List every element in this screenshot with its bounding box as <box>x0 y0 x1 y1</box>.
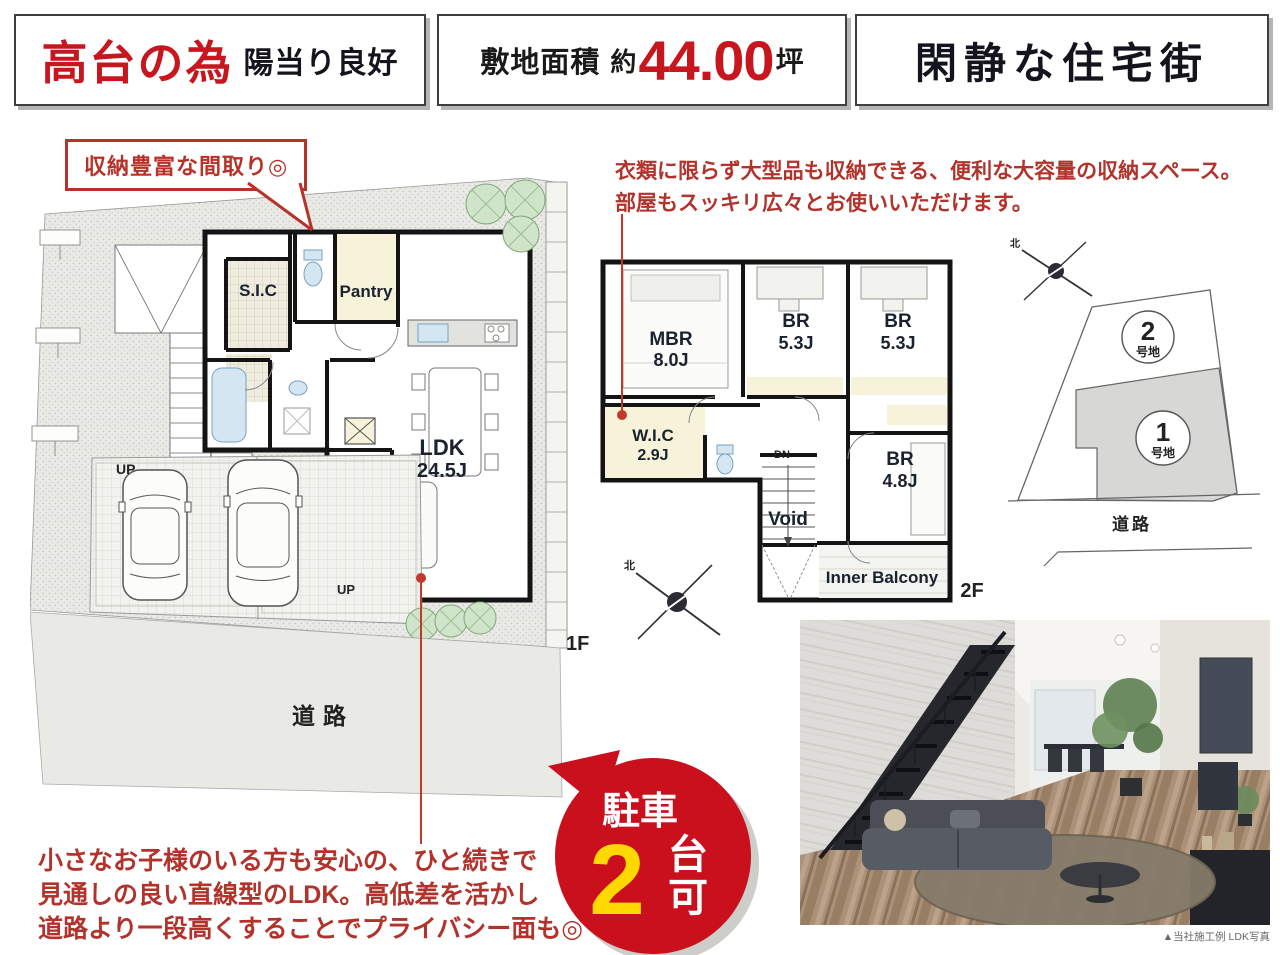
lot2-marker: 2 号地 <box>1122 311 1174 363</box>
closet-br2 <box>851 377 947 395</box>
toilet-1f <box>304 250 322 286</box>
pantry-label: Pantry <box>340 282 393 301</box>
flyer-page: 高台の為 陽当り良好 敷地面積 約 44.00 坪 閑静な住宅街 収納豊富な間取… <box>0 0 1280 955</box>
floor-plan-1f: S.I.C Pantry LDK 24.5J UP UP 道路 1F <box>30 172 610 800</box>
badge-suffix-top: 台 <box>668 833 708 877</box>
compass-site: 北 <box>1010 234 1102 306</box>
floor1-label: 1F <box>566 633 589 655</box>
photo-art-large <box>1200 658 1252 753</box>
car-2 <box>224 460 302 606</box>
callout-tail <box>230 182 320 234</box>
br3-label: BR <box>886 449 914 470</box>
dn-label: DN <box>774 449 790 461</box>
photo-window <box>1035 690 1095 770</box>
parking-badge: 駐車 2 台 可 <box>540 748 775 955</box>
ldk-connector-line <box>420 578 422 844</box>
kitchen-counter <box>408 320 517 346</box>
mbr-label: MBR <box>649 329 693 350</box>
storage-note-line1: 衣類に限らず大型品も収納できる、便利な大容量の収納スペース。 <box>615 156 1242 188</box>
lot2-suffix: 号地 <box>1136 344 1160 359</box>
floor2-label: 2F <box>960 580 983 602</box>
road-label-site: 道路 <box>1112 514 1152 534</box>
wic-label: W.I.C <box>632 426 674 445</box>
badge-count: 2 <box>589 824 645 936</box>
hilltop-text: 高台の為 <box>42 27 234 93</box>
ldk-label: LDK <box>419 435 464 460</box>
photo-art-small <box>1198 762 1238 810</box>
land-area-value: 44.00 <box>638 28 773 93</box>
closet-br1 <box>747 377 843 395</box>
retaining-wall <box>546 182 567 648</box>
compass-2f: 北 <box>622 553 732 649</box>
br3-size: 4.8J <box>882 471 917 491</box>
br1-label: BR <box>782 311 810 332</box>
approx-label: 約 <box>610 42 636 79</box>
void-label: Void <box>768 509 808 530</box>
ldk-note-line1: 小さなお子様のいる方も安心の、ひと続きで <box>38 845 583 879</box>
toilet-2f <box>717 445 733 474</box>
ldk-size-label: 24.5J <box>417 460 467 482</box>
badge-circle <box>555 758 751 954</box>
sic-floor <box>227 259 288 348</box>
lot1-suffix: 号地 <box>1151 445 1175 460</box>
photo-downlight-2 <box>1151 644 1159 652</box>
interior-photo <box>800 620 1270 925</box>
quiet-area-text: 閑静な住宅街 <box>915 30 1209 91</box>
land-area-label: 敷地面積 <box>480 39 600 81</box>
lot1-marker: 1 号地 <box>1136 411 1190 465</box>
north-label-2f: 北 <box>624 558 635 572</box>
storage-note-line2: 部屋もスッキリ広々とお使いいただけます。 <box>615 188 1242 220</box>
pantry-floor <box>337 234 396 320</box>
mbr-size: 8.0J <box>653 350 688 370</box>
car-1 <box>119 470 191 600</box>
balcony-label: Inner Balcony <box>826 568 939 587</box>
ldk-note: 小さなお子様のいる方も安心の、ひと続きで 見通しの良い直線型のLDK。高低差を活… <box>38 845 583 946</box>
br2-label: BR <box>884 311 912 332</box>
north-label-site: 北 <box>1010 237 1020 250</box>
header-box-quiet: 閑静な住宅街 <box>855 14 1269 106</box>
ldk-connector-dot <box>416 573 426 583</box>
closet-br3 <box>887 405 947 425</box>
photo-downlight-1 <box>1115 635 1125 645</box>
sunny-text: 陽当り良好 <box>244 38 399 82</box>
sic-label: S.I.C <box>239 281 277 300</box>
up-garage-label: UP <box>116 461 135 477</box>
lot2-number: 2 <box>1141 316 1155 346</box>
photo-sofa <box>862 800 1052 870</box>
wic-connector-dot <box>617 410 627 420</box>
wic-connector-line <box>621 214 623 414</box>
badge-suffix-bottom: 可 <box>668 876 708 920</box>
road-edge-bottom <box>1044 548 1252 566</box>
photo-caption: ▲当社施工例 LDK写真 <box>950 929 1270 944</box>
storage-callout-text: 収納豊富な間取り◎ <box>84 154 288 179</box>
ldk-note-line2: 見通しの良い直線型のLDK。高低差を活かし <box>38 879 583 913</box>
header-box-land-area: 敷地面積 約 44.00 坪 <box>437 14 847 106</box>
storage-box <box>345 418 375 444</box>
road-label-1f: 道路 <box>292 703 354 729</box>
up-stairs-label: UP <box>337 582 355 597</box>
header-box-hilltop: 高台の為 陽当り良好 <box>14 14 426 106</box>
br1-size: 5.3J <box>778 333 813 353</box>
storage-note: 衣類に限らず大型品も収納できる、便利な大容量の収納スペース。 部屋もスッキリ広々… <box>615 156 1242 219</box>
wic-size: 2.9J <box>637 447 668 464</box>
tsubo-unit: 坪 <box>776 40 804 80</box>
lot1-number: 1 <box>1156 417 1170 447</box>
br2-size: 5.3J <box>880 333 915 353</box>
ldk-note-line3: 道路より一段高くすることでプライバシー面も◎ <box>38 913 583 947</box>
